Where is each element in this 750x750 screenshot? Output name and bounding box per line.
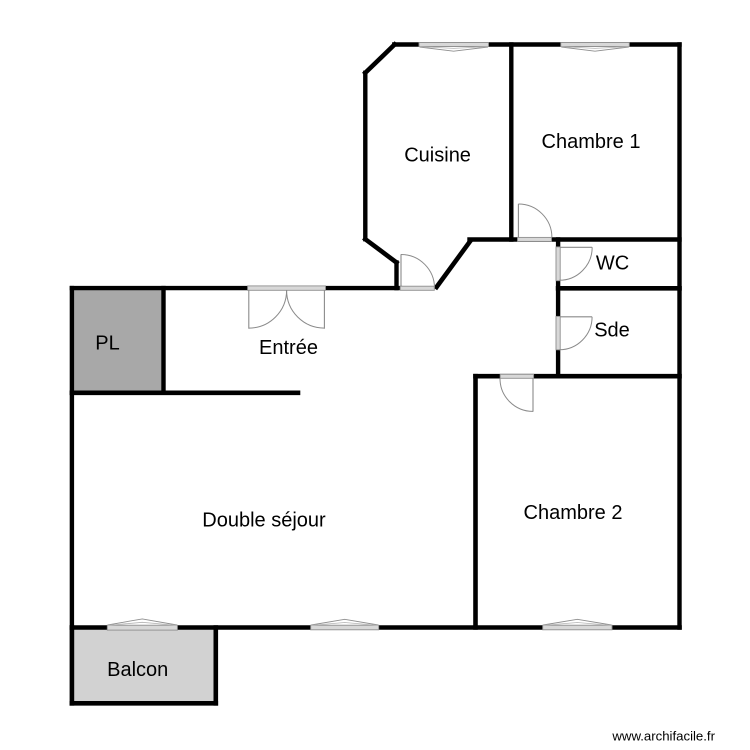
svg-text:Double séjour: Double séjour — [202, 509, 326, 531]
svg-text:Chambre 2: Chambre 2 — [524, 502, 623, 524]
svg-text:www.archifacile.fr: www.archifacile.fr — [611, 728, 715, 743]
svg-text:Entrée: Entrée — [259, 337, 318, 359]
svg-text:Chambre 1: Chambre 1 — [542, 131, 641, 153]
svg-text:Cuisine: Cuisine — [404, 145, 471, 167]
svg-text:WC: WC — [596, 253, 629, 275]
svg-text:PL: PL — [95, 332, 119, 354]
svg-text:Sde: Sde — [594, 320, 630, 342]
svg-text:Balcon: Balcon — [107, 659, 168, 681]
